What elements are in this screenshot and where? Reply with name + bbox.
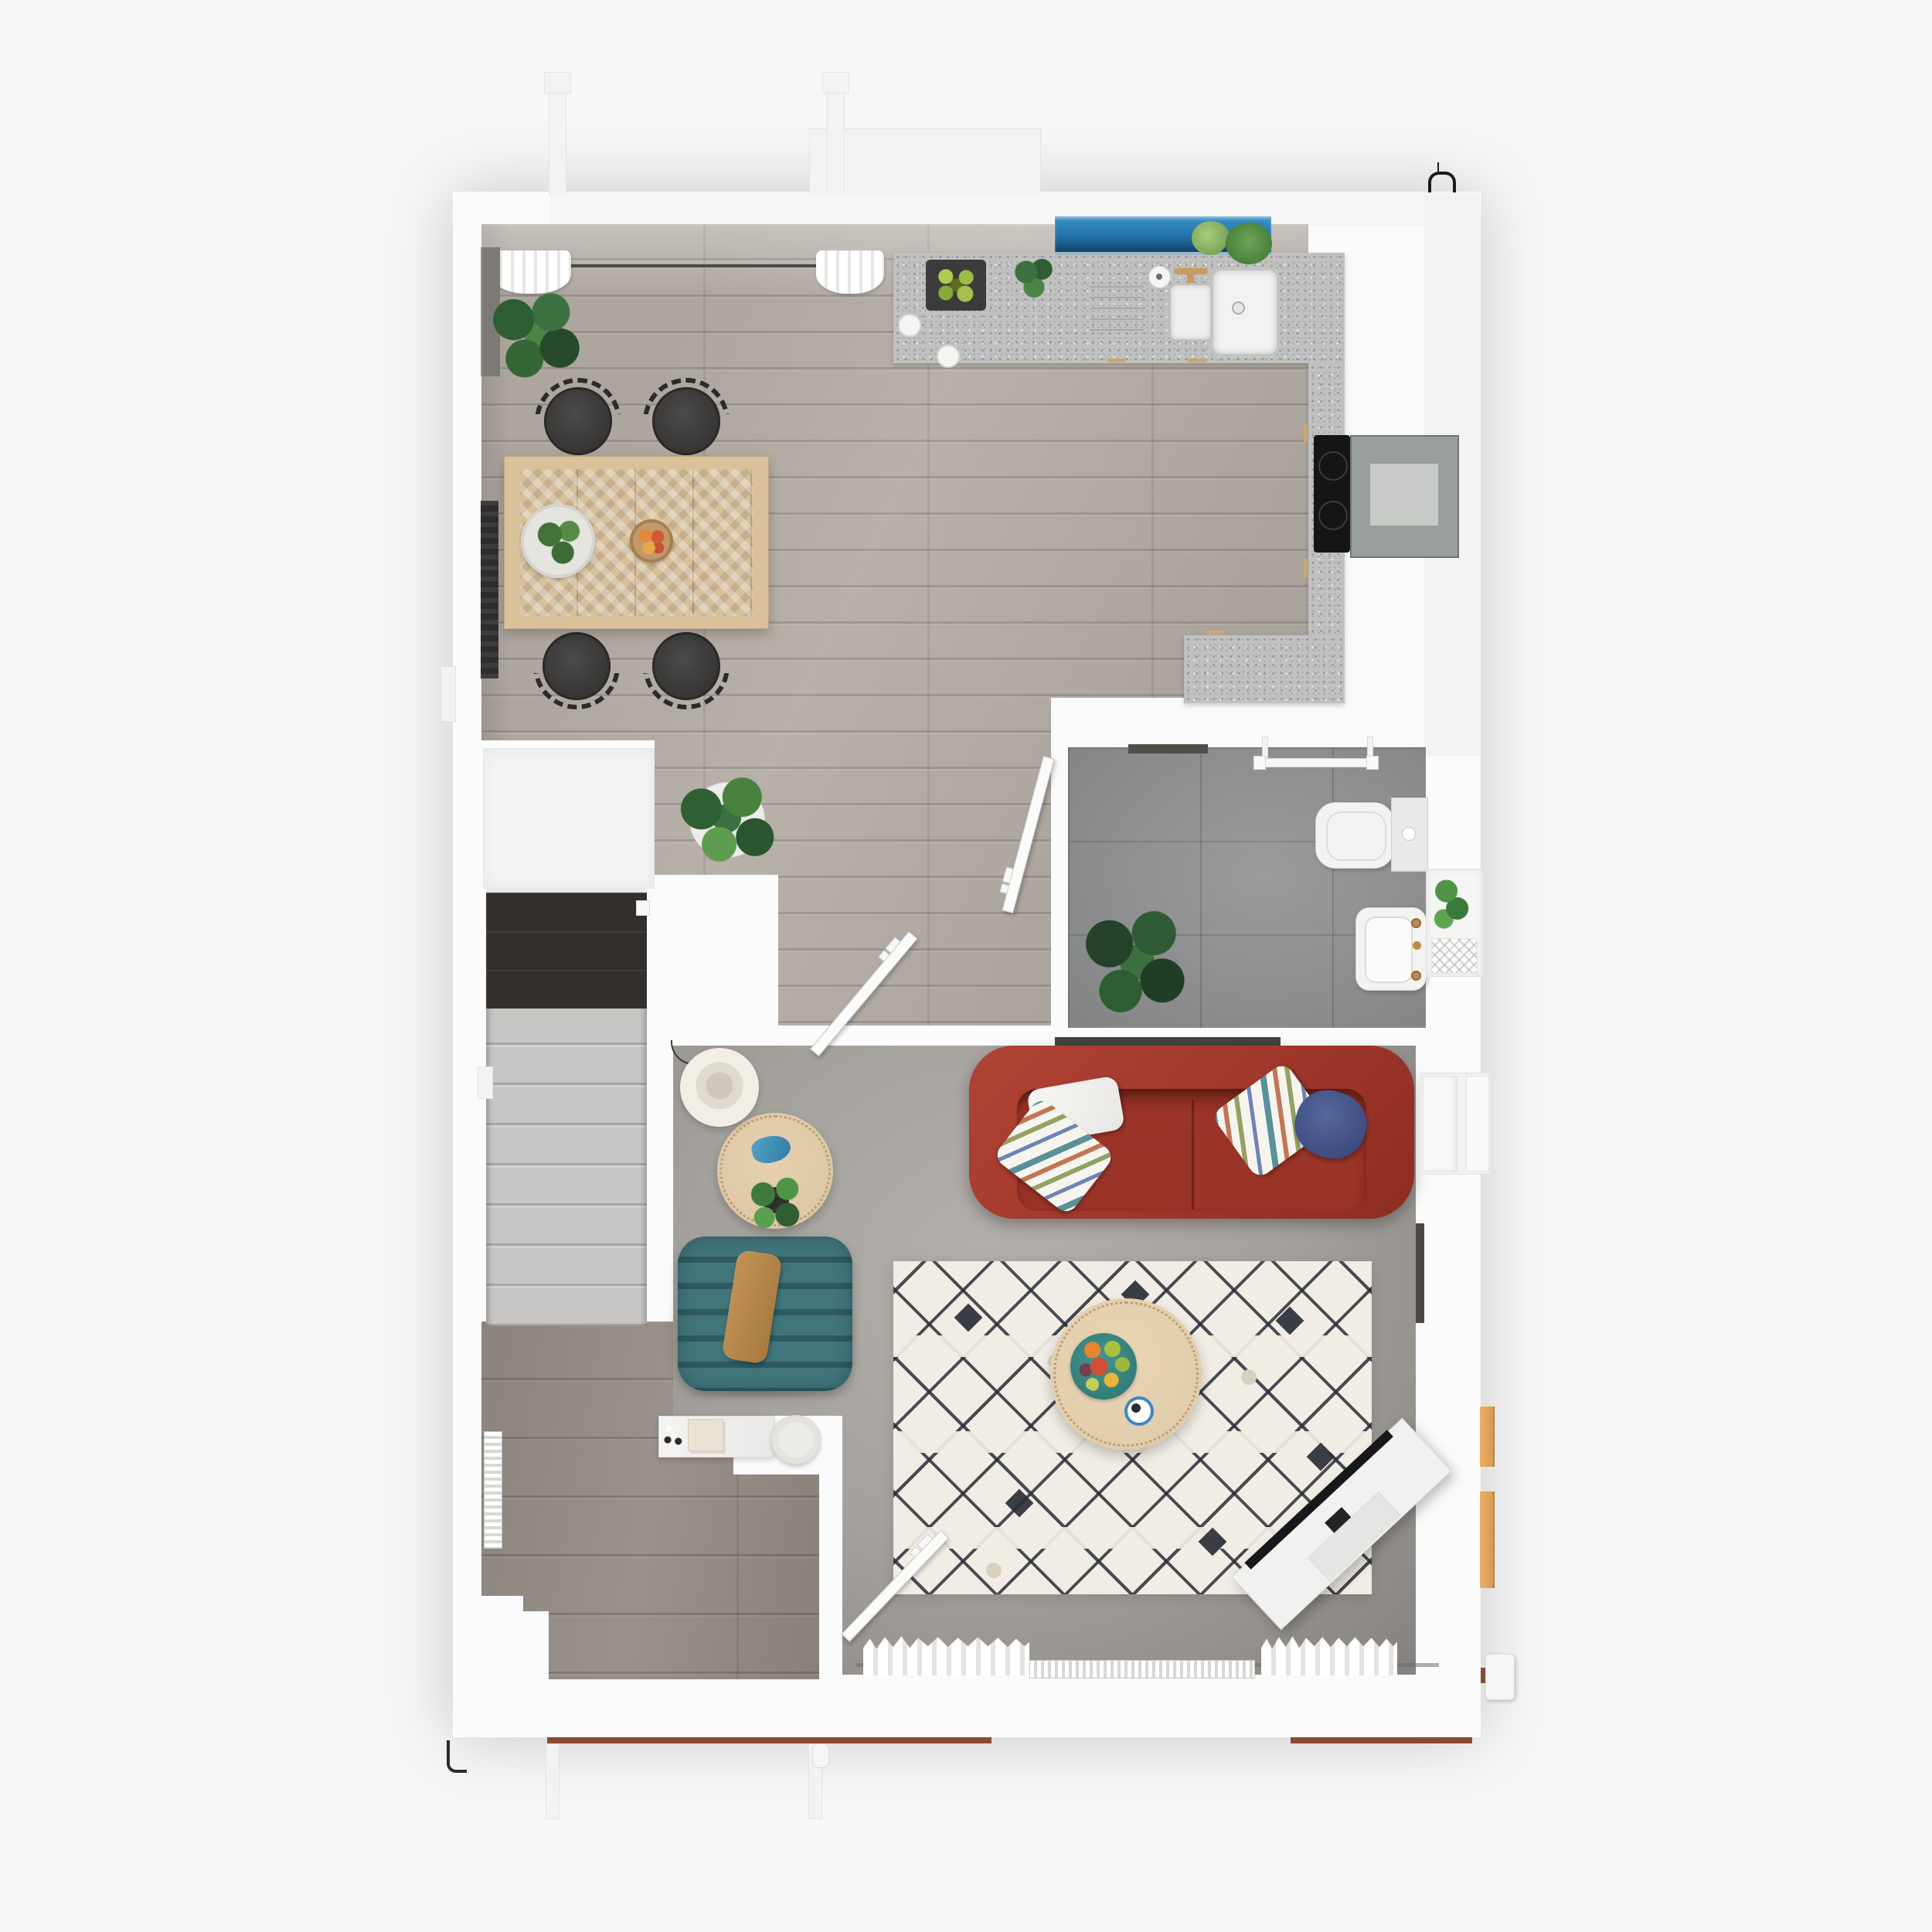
hook-tick bbox=[1437, 162, 1439, 172]
cabinet-pull bbox=[1188, 359, 1206, 362]
door-stop-knob bbox=[812, 1743, 829, 1768]
rug-beige-dot bbox=[1241, 1369, 1257, 1385]
handrail-bracket bbox=[478, 1066, 493, 1099]
rug-diamond-motif bbox=[954, 1304, 983, 1332]
curtain-right bbox=[816, 250, 884, 294]
wall-radiator-black bbox=[481, 501, 498, 679]
staircase bbox=[486, 1005, 647, 1326]
cooktop-burner bbox=[1318, 501, 1348, 530]
toilet-seat-line bbox=[1326, 811, 1386, 861]
threshold-strip bbox=[1291, 1737, 1472, 1743]
radiator-hallway bbox=[484, 1431, 502, 1549]
rug-diamond-motif bbox=[1307, 1443, 1335, 1471]
espresso-coffee bbox=[1131, 1403, 1141, 1413]
left-wall-vent-tab bbox=[440, 666, 456, 722]
doorframe-post-cap bbox=[544, 72, 571, 94]
hook-mark-bottom-left-icon bbox=[447, 1740, 467, 1773]
wall-band-top bbox=[550, 192, 1480, 226]
wall-shadow-strip bbox=[1416, 1223, 1424, 1323]
rug-diamond-motif bbox=[1199, 1528, 1227, 1556]
coffee-cup bbox=[937, 345, 960, 368]
niche-plant bbox=[1427, 870, 1476, 940]
sink-drain bbox=[1232, 301, 1245, 315]
towel-rail bbox=[1257, 758, 1379, 767]
cabinet-pull bbox=[1304, 559, 1308, 577]
bathroom-cup bbox=[1411, 918, 1421, 928]
toilet-flush-button bbox=[1402, 827, 1416, 841]
mixed-fruit bbox=[1076, 1338, 1131, 1393]
console-books bbox=[688, 1419, 723, 1451]
planter-plant bbox=[1226, 223, 1272, 264]
living-window-pane bbox=[1423, 1076, 1458, 1172]
cooktop-burner bbox=[1318, 451, 1348, 481]
floor-plan-canvas bbox=[0, 0, 1932, 1932]
sink-basin-left bbox=[1168, 283, 1213, 342]
soap-dispenser-spout bbox=[1156, 274, 1162, 280]
drainboard-grooves bbox=[1090, 286, 1144, 331]
floor-lamp bbox=[680, 1048, 759, 1127]
monstera-dining bbox=[481, 283, 590, 388]
philodendron-corridor bbox=[663, 762, 791, 879]
rug-diamond-motif bbox=[1276, 1307, 1304, 1335]
threshold-strip bbox=[547, 1737, 992, 1743]
dining-chair bbox=[643, 623, 730, 709]
herb-plate-greens bbox=[527, 509, 592, 573]
peaches bbox=[634, 524, 668, 558]
vent-box-cover bbox=[1485, 1654, 1515, 1700]
living-window-pane bbox=[1466, 1076, 1489, 1172]
porch-post bbox=[546, 1743, 560, 1819]
shutter-panel bbox=[1480, 1492, 1495, 1588]
towel-rail-endcap bbox=[1253, 756, 1266, 770]
closet-door-handle bbox=[636, 900, 650, 916]
stair-landing-dark-wood bbox=[486, 889, 647, 1009]
planter-plant bbox=[1192, 221, 1230, 255]
oven-front bbox=[1370, 464, 1438, 526]
bathroom-cup bbox=[1411, 971, 1421, 981]
storage-closet bbox=[483, 748, 655, 889]
rug-beige-dot bbox=[986, 1563, 1002, 1578]
radiator-bottom bbox=[1029, 1660, 1255, 1679]
kitchen-counter-bottom bbox=[1184, 635, 1345, 703]
cabinet-pull bbox=[1107, 359, 1126, 362]
pedestal-stool bbox=[771, 1415, 821, 1464]
dining-chair bbox=[535, 378, 621, 464]
sofa-seat-seam bbox=[1192, 1100, 1194, 1209]
dining-chair bbox=[533, 623, 620, 709]
bidet-basin bbox=[1365, 917, 1413, 983]
shutter-panel bbox=[1480, 1406, 1495, 1467]
towel-rail-endcap bbox=[1366, 756, 1379, 770]
dining-chair bbox=[643, 378, 730, 464]
monstera-bathroom bbox=[1065, 896, 1204, 1028]
niche-patterned-towel bbox=[1431, 938, 1478, 974]
counter-plant bbox=[1008, 250, 1060, 304]
cabinet-pull bbox=[1304, 423, 1308, 442]
cabinet-pull bbox=[1206, 631, 1224, 634]
bathroom-lintel bbox=[1128, 744, 1208, 753]
coffee-cup bbox=[898, 314, 921, 337]
console-flowers bbox=[662, 1420, 686, 1448]
green-apples bbox=[930, 264, 981, 307]
doorframe-post-cap bbox=[822, 72, 849, 94]
rug-diamond-motif bbox=[1005, 1489, 1034, 1518]
sink-basin-right bbox=[1210, 267, 1280, 357]
side-table-plant bbox=[740, 1168, 811, 1236]
bidet-tap bbox=[1413, 941, 1421, 950]
